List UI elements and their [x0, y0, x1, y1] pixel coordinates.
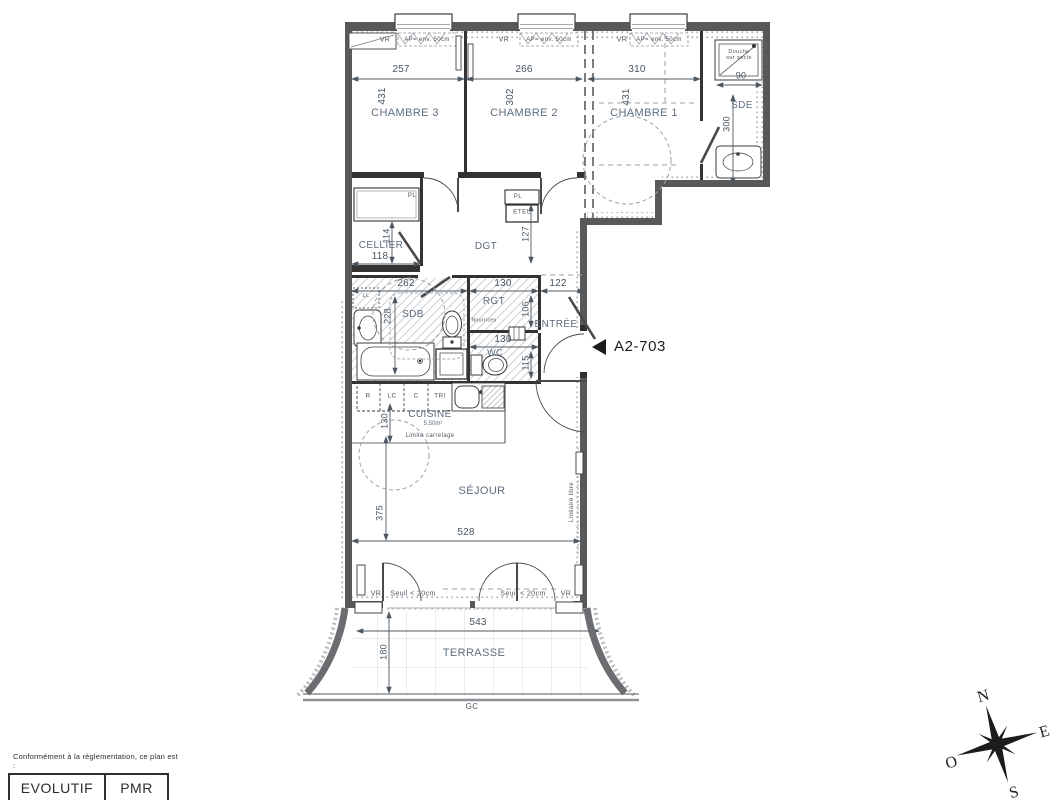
compass-south-label: S — [1007, 783, 1020, 800]
room-label-entree: ENTRÉE — [535, 320, 578, 331]
dim-sejour-width: 528 — [457, 528, 474, 539]
unit-code-label: A2-703 — [614, 339, 666, 355]
room-label-chambre1: CHAMBRE 1 — [610, 108, 678, 120]
window-chambre2 — [518, 14, 575, 31]
wc-toilet — [471, 355, 507, 375]
legend-item-evolutif: EVOLUTIF — [10, 775, 106, 800]
compass-north-label: N — [975, 687, 991, 707]
compass-west-label: O — [944, 753, 960, 773]
ap-label-1: AP= env. 50cm — [404, 37, 450, 43]
dim-chambre3-width: 257 — [392, 65, 409, 76]
sde-washbasin — [716, 146, 761, 178]
room-label-cuisine: CUISINE — [408, 410, 451, 421]
appliance-c: C — [413, 394, 418, 401]
room-label-dgt: DGT — [475, 242, 497, 253]
dim-wc-depth: 115 — [521, 356, 530, 371]
evolutive-partition — [585, 31, 593, 218]
dim-terrasse-depth: 180 — [379, 644, 388, 660]
seuil-label-2: Seuil < 20cm — [500, 590, 545, 597]
dim-sejour-depth: 375 — [375, 505, 384, 521]
closets — [354, 188, 539, 222]
legend: Conformément à la réglementation, ce pla… — [8, 752, 178, 800]
dim-cuisine-depth: 130 — [380, 413, 389, 429]
vr-label-3: VR — [617, 36, 628, 43]
room-label-sde: SDE — [731, 101, 753, 112]
ap-label-2: AP= env. 50cm — [526, 37, 572, 43]
vr-box-right — [556, 602, 583, 613]
appliance-lc: LC — [387, 394, 396, 401]
dim-sdb-width: 262 — [397, 279, 414, 290]
legend-title: Conformément à la réglementation, ce pla… — [13, 752, 178, 770]
room-label-chambre3: CHAMBRE 3 — [371, 108, 439, 120]
dim-rgt-depth: 106 — [521, 301, 530, 317]
dim-shower-width: 90 — [736, 71, 746, 80]
room-label-sejour: SÉJOUR — [458, 486, 505, 498]
entry-door — [544, 297, 595, 373]
floorplan-drawing: N E S O — [0, 0, 1056, 800]
dim-chambre2-depth: 302 — [506, 88, 517, 105]
compass-rose: N E S O — [928, 673, 1056, 800]
vr-label-4: VR — [371, 590, 382, 597]
room-label-wc: WC — [487, 348, 503, 357]
room-label-rgt: RGT — [483, 297, 505, 308]
lineaire-libre-label: Linéaire libre — [569, 482, 575, 522]
dim-terrasse-width: 543 — [469, 618, 486, 629]
dim-rgt-width: 130 — [494, 279, 511, 290]
appliance-tri: TRI — [434, 394, 446, 401]
dim-chambre3-depth: 431 — [378, 87, 389, 104]
nourrices-label: Nourrices — [472, 318, 497, 323]
pl-label-cellier: PL — [408, 193, 416, 199]
room-label-terrasse: TERRASSE — [443, 648, 506, 660]
washbasin-unit — [436, 349, 467, 379]
ap-label-3: AP= env. 50cm — [636, 37, 682, 43]
vr-box-left — [355, 602, 382, 613]
limite-carrelage-label: Limite carrelage — [405, 433, 454, 439]
dim-wc-width: 130 — [494, 335, 511, 346]
gc-label: GC — [466, 703, 479, 711]
sdb-washbasin — [354, 310, 381, 347]
cuisine-area-label: 5.50m² — [424, 421, 443, 427]
room-label-chambre2: CHAMBRE 2 — [490, 108, 558, 120]
dim-cellier-depth: 114 — [382, 229, 391, 244]
etel-label: ETEL — [513, 210, 531, 217]
ll-label: LL — [363, 294, 370, 300]
dim-sde-depth: 300 — [722, 116, 731, 132]
floorplan-canvas: N E S O CHAMBRE 3 CHAMBRE 2 CHAMBRE 1 SD… — [0, 0, 1056, 800]
seuil-label-1: Seuil < 20cm — [390, 590, 435, 597]
room-label-sdb: SDB — [402, 310, 424, 321]
window-chambre3 — [395, 14, 452, 31]
compass-east-label: E — [1037, 722, 1051, 741]
dim-chambre1-depth: 431 — [622, 88, 633, 105]
door-chambre3 — [424, 178, 458, 212]
dim-cellier-width: 118 — [372, 252, 389, 263]
unit-arrow-icon — [592, 339, 606, 355]
shutter-pockets-sejour — [357, 452, 583, 595]
appliance-r: R — [365, 394, 370, 401]
dim-dgt-depth: 127 — [521, 226, 530, 242]
sdb-bathtub — [357, 343, 434, 380]
dim-entree-width: 122 — [549, 279, 566, 290]
facade-windows — [349, 14, 688, 49]
legend-item-pmr: PMR — [106, 775, 167, 800]
dim-chambre1-width: 310 — [628, 65, 645, 76]
window-chambre1 — [630, 14, 687, 31]
vr-label-2: VR — [499, 36, 510, 43]
dim-chambre2-width: 266 — [515, 65, 532, 76]
vr-label-1: VR — [380, 36, 391, 43]
pl-label-dgt: PL — [514, 194, 522, 200]
shower-note: Douche sur socle — [723, 50, 755, 62]
vr-label-5: VR — [561, 590, 572, 597]
door-chambre2 — [541, 178, 577, 214]
dim-sdb-depth: 228 — [383, 308, 392, 324]
legend-box: EVOLUTIF PMR — [8, 773, 169, 800]
